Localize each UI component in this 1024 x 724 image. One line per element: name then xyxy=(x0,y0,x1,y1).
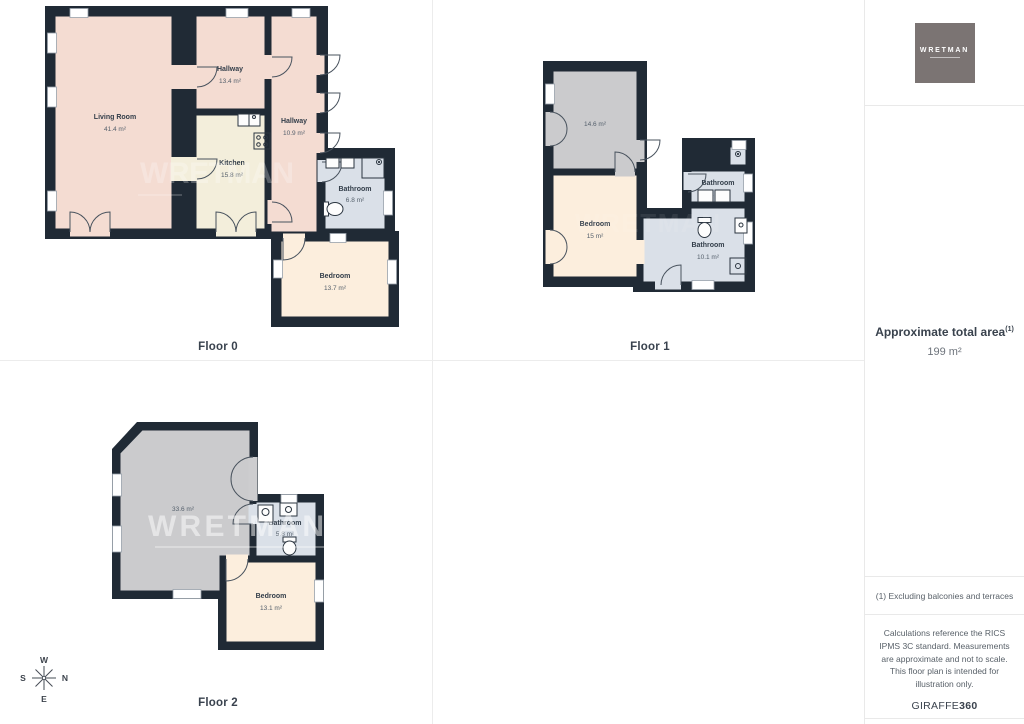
window-marker xyxy=(113,526,122,552)
floor-2-plan: 33.6 m² Bathroom 5.8 m² Bedroom 13.1 m² xyxy=(95,412,345,657)
room-area-label: 13.4 m² xyxy=(219,78,242,85)
door-gap xyxy=(249,457,258,501)
room-bedroom-floor xyxy=(223,559,319,645)
agency-logo-text: WRETMAN xyxy=(920,47,969,54)
window-marker xyxy=(113,474,122,496)
window-marker xyxy=(744,174,753,192)
door-gap xyxy=(316,55,325,75)
window-marker xyxy=(70,9,88,18)
door-gap xyxy=(615,168,635,177)
toilet-icon xyxy=(324,202,344,216)
window-marker xyxy=(384,191,393,215)
room-label: Hallway xyxy=(217,66,243,73)
door-gap xyxy=(546,230,555,264)
door-gap xyxy=(283,234,305,243)
room-area-label: 10.1 m² xyxy=(697,254,720,261)
bathroom-sink-icon xyxy=(735,218,747,233)
room-area-label: 13.7 m² xyxy=(324,285,347,292)
agency-logo: WRETMAN xyxy=(915,23,975,83)
window-marker xyxy=(732,141,746,150)
door-gap xyxy=(655,281,681,290)
door-gap xyxy=(636,240,645,264)
room-label: Bedroom xyxy=(256,593,287,600)
window-marker xyxy=(330,234,346,243)
watermark-text: WRETMAN xyxy=(575,208,725,238)
room-hallway-floor xyxy=(193,13,268,112)
window-marker xyxy=(226,9,248,18)
room-living-room-floor xyxy=(52,13,175,232)
room-label: Bathroom xyxy=(701,180,734,187)
door-gap xyxy=(316,93,325,113)
door-gap xyxy=(226,555,248,564)
room-hallway-top: Hallway 13.4 m² xyxy=(193,13,268,112)
floor-0-label: Floor 0 xyxy=(158,341,278,353)
grid-vertical-divider xyxy=(432,0,433,724)
door-gap xyxy=(171,65,197,89)
window-marker xyxy=(48,87,57,107)
room-label: Bathroom xyxy=(691,242,724,249)
compass-east-label: E xyxy=(41,694,47,704)
room-unnamed-14-6: 14.6 m² xyxy=(550,68,640,172)
brand-suffix: 360 xyxy=(959,700,977,712)
window-marker xyxy=(173,590,201,599)
floor-1-plan: 14.6 m² Bedroom 15 m² Bathroom 4.8 m² Ba… xyxy=(520,40,770,300)
room-living-room: Living Room 41.4 m² xyxy=(52,13,175,232)
total-area-footnote-ref: (1) xyxy=(1005,326,1014,333)
window-marker xyxy=(281,495,297,504)
total-area-title: Approximate total area(1) xyxy=(875,325,1014,339)
disclaimer-text: Calculations reference the RICS IPMS 3C … xyxy=(878,627,1011,691)
floor-1-label: Floor 1 xyxy=(590,341,710,353)
footnote-section: (1) Excluding balconies and terraces xyxy=(865,577,1024,615)
disclaimer-section: Calculations reference the RICS IPMS 3C … xyxy=(865,615,1024,719)
window-marker xyxy=(48,33,57,53)
compass-west-label: W xyxy=(40,655,49,665)
door-gap xyxy=(316,133,325,153)
window-marker xyxy=(692,281,714,290)
door-gap xyxy=(264,55,273,79)
room-area-label: 13.1 m² xyxy=(260,605,283,612)
door-gap xyxy=(268,200,277,224)
grid-horizontal-divider xyxy=(0,360,864,361)
compass-rose-icon: W N E S xyxy=(12,646,76,710)
agency-logo-underline xyxy=(930,57,960,58)
door-gap xyxy=(546,112,555,146)
total-area-label: Approximate total area xyxy=(875,325,1005,339)
logo-section: WRETMAN xyxy=(865,0,1024,106)
room-floor xyxy=(550,68,640,172)
room-label: Hallway xyxy=(281,118,307,125)
watermark-text: WRETMAN xyxy=(140,157,300,190)
window-marker xyxy=(315,580,324,602)
floor-0-plan: Living Room 41.4 m² Hallway 13.4 m² Kitc… xyxy=(30,5,400,335)
compass-center xyxy=(42,676,45,679)
footnote-text: (1) Excluding balconies and terraces xyxy=(876,591,1014,601)
kitchen-sink-icon xyxy=(238,114,260,126)
window-marker xyxy=(388,260,397,284)
door-gap xyxy=(684,172,693,190)
room-area-label: 6.8 m² xyxy=(346,197,365,204)
room-area-label: 41.4 m² xyxy=(104,126,127,133)
brand-name: GIRAFFE xyxy=(911,700,959,712)
door-gap xyxy=(318,160,327,182)
info-sidebar: WRETMAN Approximate total area(1) 199 m²… xyxy=(864,0,1024,724)
compass-south-label: S xyxy=(20,673,26,683)
window-marker xyxy=(292,9,310,18)
window-marker xyxy=(546,84,555,104)
floor-2-label: Floor 2 xyxy=(158,697,278,709)
window-marker xyxy=(48,191,57,211)
compass-north-label: N xyxy=(62,673,68,683)
window-marker xyxy=(274,260,283,278)
total-area-section: Approximate total area(1) 199 m² xyxy=(865,106,1024,577)
total-area-value: 199 m² xyxy=(927,346,961,358)
giraffe360-brand: GIRAFFE360 xyxy=(878,700,1011,712)
room-area-label: 10.9 m² xyxy=(283,130,306,137)
door-gap xyxy=(636,140,645,162)
room-label: Bathroom xyxy=(338,186,371,193)
floorplan-page: Living Room 41.4 m² Hallway 13.4 m² Kitc… xyxy=(0,0,1024,724)
room-bedroom: Bedroom 13.7 m² xyxy=(278,238,392,320)
room-label: Bedroom xyxy=(320,273,351,280)
room-area-label: 14.6 m² xyxy=(584,121,607,128)
room-label: Living Room xyxy=(94,114,136,121)
watermark-text: WRETMAN xyxy=(148,510,330,543)
room-bedroom: Bedroom 13.1 m² xyxy=(223,559,319,645)
